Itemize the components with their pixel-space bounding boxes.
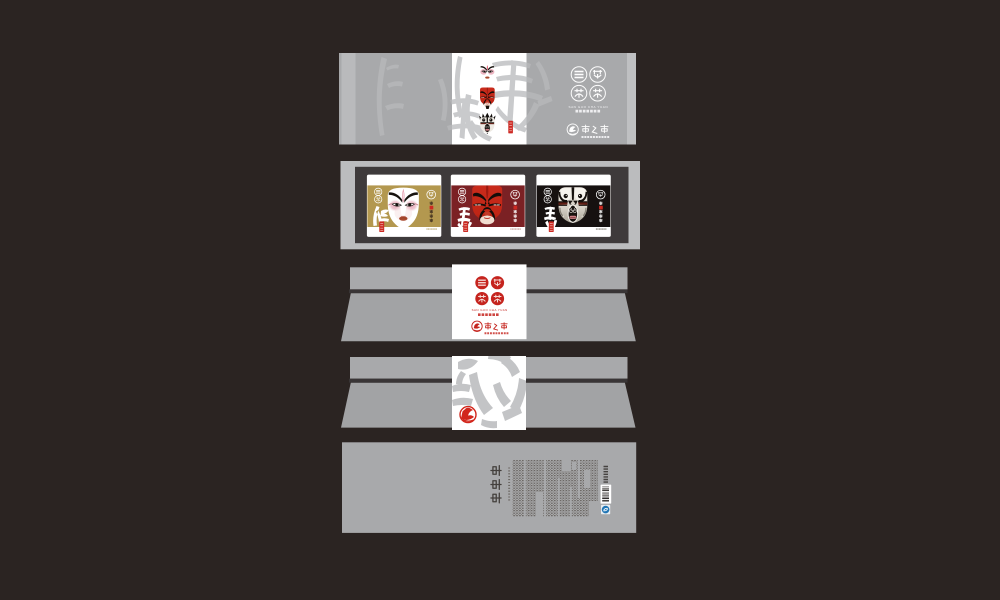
svg-text:SAN GUO CHA YUAN: SAN GUO CHA YUAN <box>472 308 508 312</box>
svg-text:SAN GUO CHA YUAN: SAN GUO CHA YUAN <box>568 105 608 109</box>
